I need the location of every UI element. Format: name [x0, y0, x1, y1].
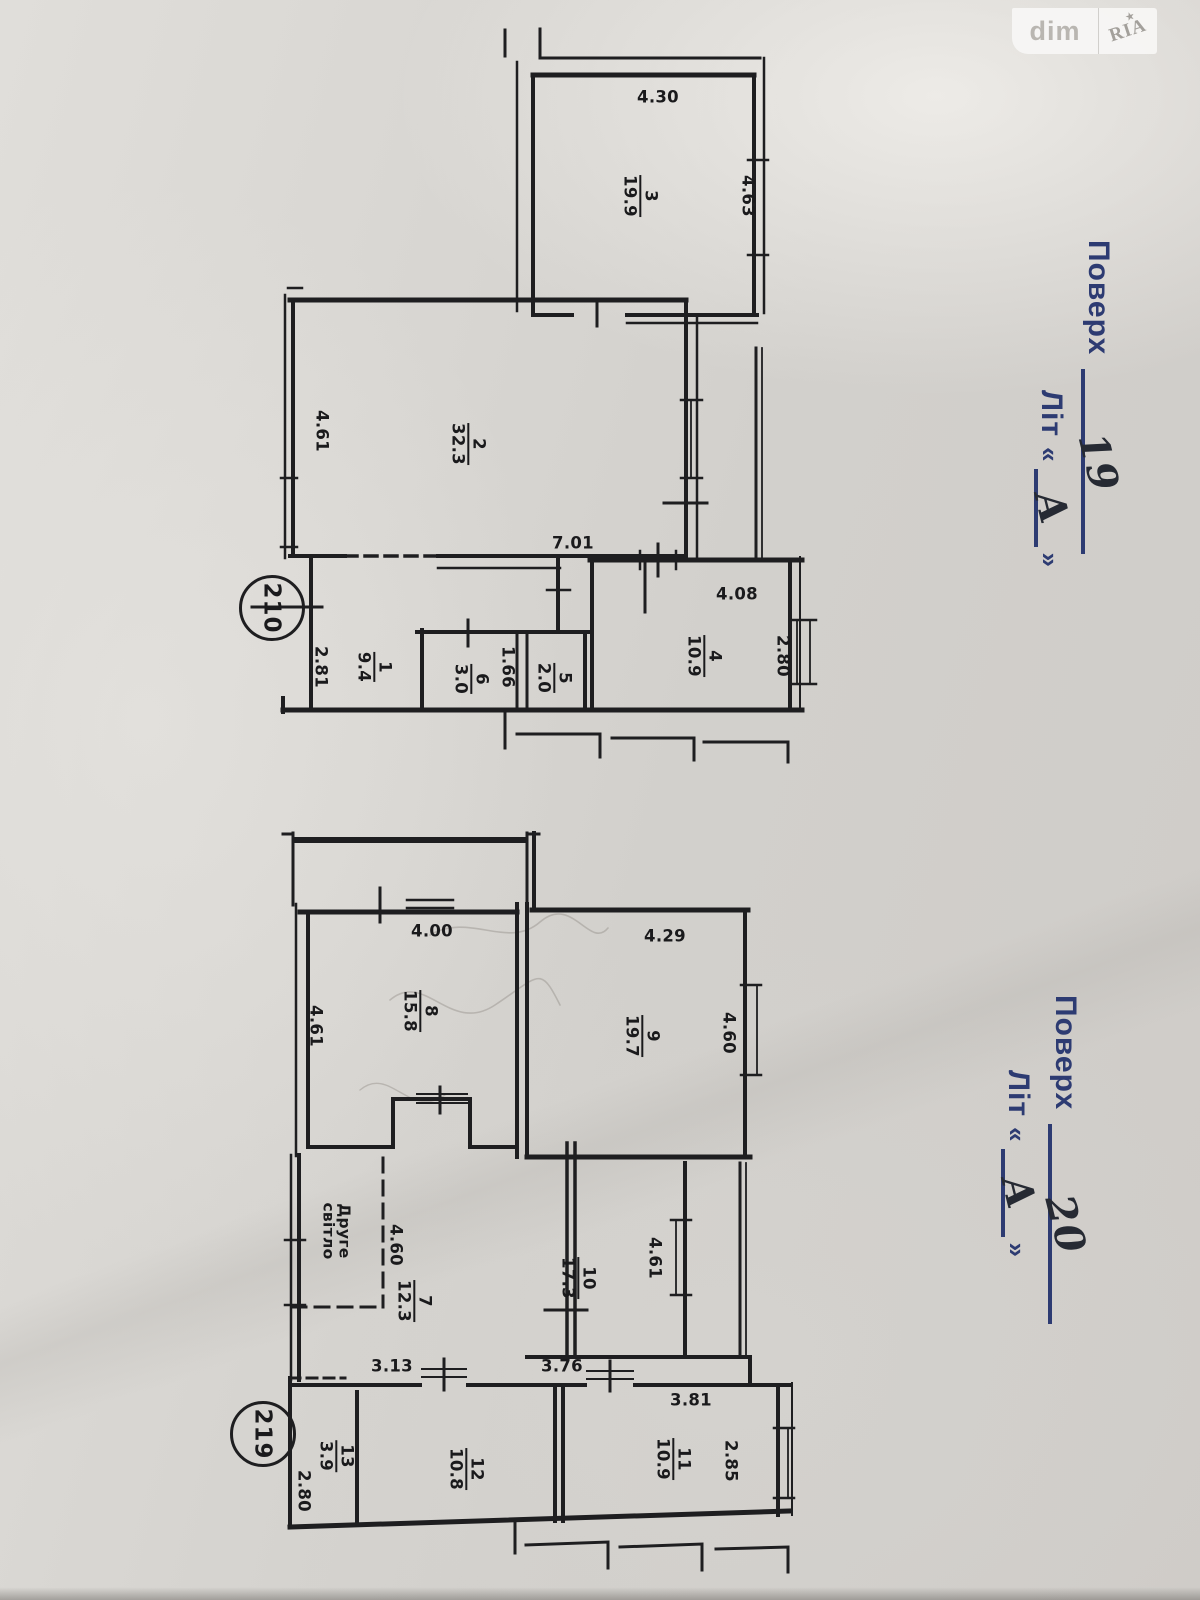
dim-label: 4.60 — [720, 1012, 737, 1054]
watermark-dim-box: dim — [1012, 8, 1098, 54]
dim-label: 7.01 — [552, 534, 594, 551]
room-area: 12.3 — [395, 1280, 413, 1322]
stamp-floor-value-handwritten: 20 — [1042, 1192, 1087, 1258]
room-number: 12 — [465, 1448, 485, 1490]
stamp-lit-value-handwritten: А — [998, 1173, 1037, 1214]
close-quote: » — [1001, 1243, 1032, 1258]
stamp-lit-word: Літ — [1001, 1070, 1035, 1117]
room-area: 17.3 — [559, 1257, 577, 1299]
room-number: 13 — [335, 1440, 355, 1472]
site-watermark: dim ★ RIA — [1012, 8, 1157, 54]
room-label-9: 9 19.7 — [623, 1015, 662, 1057]
room-number: 1 — [373, 652, 393, 682]
stamp-floor-value-handwritten: 19 — [1075, 430, 1120, 496]
close-quote: » — [1034, 553, 1065, 568]
dim-label: 4.08 — [716, 585, 758, 602]
room-area: 10.9 — [654, 1438, 672, 1480]
apartment-number-circle-219: 219 — [230, 1401, 296, 1467]
stamp-floor-word: Поверх — [1081, 240, 1115, 355]
room-number: 2 — [467, 423, 487, 465]
room-area: 9.4 — [355, 652, 373, 682]
room-label-12: 12 10.8 — [447, 1448, 486, 1490]
stamp-lit-line: Літ « А » — [1034, 390, 1071, 590]
stamp-floor-word: Поверх — [1048, 995, 1082, 1110]
dim-label: 1.66 — [499, 646, 516, 688]
dim-label: 2.80 — [774, 635, 791, 677]
stamp-lit-line: Літ « А » — [1001, 1070, 1038, 1355]
dim-label: 4.63 — [739, 175, 756, 217]
scanned-floorplan-page: { "watermark": {"left": "dim", "right": … — [0, 0, 1200, 1600]
dim-label: 4.61 — [313, 410, 330, 452]
room-area: 19.7 — [623, 1015, 641, 1057]
dim-label: 2.81 — [312, 646, 329, 688]
stamp-lit-underline: А — [1001, 1149, 1038, 1237]
room-number: 9 — [641, 1015, 661, 1057]
room-label-3: 3 19.9 — [621, 175, 660, 217]
dim-label: 2.80 — [295, 1470, 312, 1512]
dim-label: 3.76 — [541, 1357, 583, 1374]
room-area: 19.9 — [621, 175, 639, 217]
void-label-line2: світло — [320, 1202, 336, 1259]
stamp-floor-20: Поверх 20 Літ « А » — [965, 995, 1085, 1355]
floor-19-walls — [252, 29, 816, 762]
room-number: 8 — [419, 990, 439, 1032]
room-label-6: 6 3.0 — [452, 664, 491, 694]
room-number: 5 — [553, 663, 573, 693]
open-quote: « — [1034, 447, 1065, 462]
room-number: 11 — [672, 1438, 692, 1480]
stamp-floor-line: Поверх 20 — [1048, 995, 1085, 1355]
open-quote: « — [1001, 1127, 1032, 1142]
dim-label: 3.13 — [371, 1357, 413, 1374]
room-label-1: 1 9.4 — [355, 652, 394, 682]
dim-label: 4.00 — [411, 922, 453, 939]
room-label-4: 4 10.9 — [685, 635, 724, 677]
void-label-line1: Друге — [336, 1202, 352, 1259]
apartment-number: 210 — [259, 582, 285, 633]
stamp-lit-underline: А — [1034, 469, 1071, 547]
stamp-floor-line: Поверх 19 — [1081, 240, 1118, 590]
dim-label: 4.61 — [646, 1237, 663, 1279]
dim-label: 2.85 — [722, 1440, 739, 1482]
room-label-2: 2 32.3 — [449, 423, 488, 465]
room-number: 6 — [470, 664, 490, 694]
room-number: 4 — [703, 635, 723, 677]
stamp-floor-underline: 19 — [1081, 369, 1118, 554]
room-area: 3.0 — [452, 664, 470, 694]
floor-plan-20: 8 15.8 4.00 4.61 9 19.7 4.29 4.60 Друге … — [240, 800, 820, 1590]
room-number: 7 — [413, 1280, 433, 1322]
dim-label: 4.29 — [644, 927, 686, 944]
watermark-dim-text: dim — [1029, 16, 1080, 47]
room-area: 32.3 — [449, 423, 467, 465]
floor-plan-19: 3 19.9 4.30 4.63 2 32.3 4.61 7.01 1 9.4 … — [240, 12, 820, 772]
dim-label: 3.81 — [670, 1391, 712, 1408]
stamp-lit-word: Літ — [1034, 390, 1068, 437]
room-area: 10.8 — [447, 1448, 465, 1490]
stamp-floor-19: Поверх 19 Літ « А » — [1013, 240, 1118, 590]
dim-label: 4.61 — [307, 1005, 324, 1047]
stamp-floor-underline: 20 — [1048, 1124, 1085, 1324]
void-label: Друге світло — [320, 1202, 353, 1259]
dim-label: 4.30 — [637, 88, 679, 105]
room-label-13: 13 3.9 — [317, 1440, 356, 1472]
room-label-10: 10 17.3 — [559, 1257, 598, 1299]
room-area: 2.0 — [535, 663, 553, 693]
room-label-5: 5 2.0 — [535, 663, 574, 693]
room-number: 10 — [577, 1257, 597, 1299]
room-label-11: 11 10.9 — [654, 1438, 693, 1480]
apartment-number: 219 — [250, 1408, 276, 1459]
room-number: 3 — [639, 175, 659, 217]
pencil-scribbles — [360, 914, 608, 1102]
room-area: 10.9 — [685, 635, 703, 677]
watermark-ria-text: RIA — [1107, 15, 1150, 48]
watermark-ria-box: ★ RIA — [1098, 8, 1157, 54]
room-area: 15.8 — [401, 990, 419, 1032]
room-label-8: 8 15.8 — [401, 990, 440, 1032]
apartment-number-circle-210: 210 — [239, 575, 305, 641]
dim-label: 4.60 — [387, 1224, 404, 1266]
room-label-7: 7 12.3 — [395, 1280, 434, 1322]
room-area: 3.9 — [317, 1440, 335, 1472]
floor-20-walls — [283, 833, 794, 1572]
stamp-lit-value-handwritten: А — [1031, 488, 1070, 529]
